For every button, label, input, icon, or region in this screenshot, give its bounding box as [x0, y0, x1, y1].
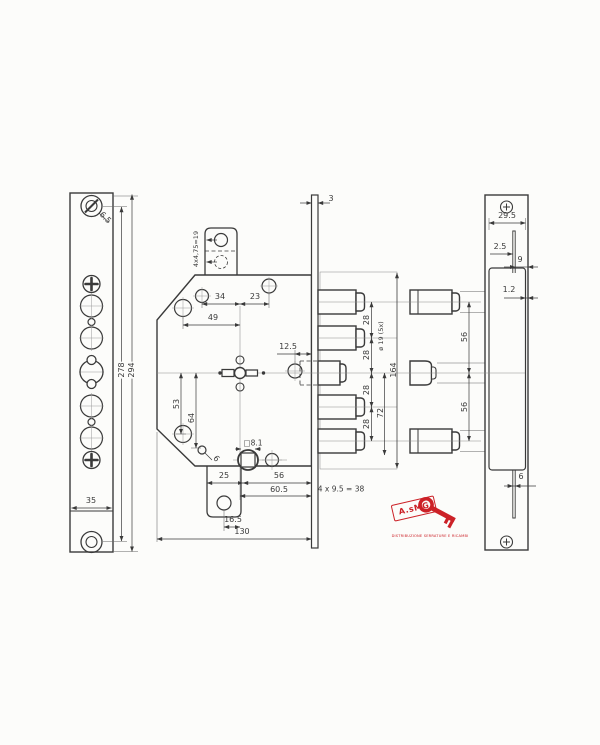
dim-12-5: 12.5 — [279, 343, 297, 351]
dim-plate-width: 35 — [86, 497, 96, 505]
dim-tab-pitch: 4x4,75=19 — [193, 231, 200, 267]
dim-2-5: 2.5 — [494, 243, 507, 251]
dim-screw-formula: 4 x 9.5 = 38 — [318, 485, 365, 493]
dim-164: 164 — [390, 362, 398, 377]
projection-lines — [437, 292, 485, 452]
dim-53: 53 — [173, 399, 181, 409]
dim-bolt-pitch-3: 28 — [363, 385, 371, 395]
bolts-rear-view — [300, 290, 365, 453]
dim-bolt-pitch-2: 28 — [363, 350, 371, 360]
dim-6-bottom: 6 — [518, 473, 523, 481]
dim-spindle-square: □8.1 — [243, 439, 262, 447]
dim-49: 49 — [208, 314, 218, 322]
dim-bolt-pitch-1: 28 — [363, 315, 371, 325]
dim-34: 34 — [215, 293, 225, 301]
faceplate-edge-view — [312, 195, 319, 548]
dim-25: 25 — [219, 472, 229, 480]
brand-caption: DISTRIBUZIONE SERRATURE E RICAMBI — [390, 534, 470, 538]
dim-strike-width: 29.5 — [498, 212, 516, 220]
dim-bolt-diameter: ø 19 (5x) — [378, 321, 385, 350]
dim-56: 56 — [274, 472, 284, 480]
dim-faceplate-thickness: 3 — [328, 195, 333, 203]
dim-16-5: 16.5 — [224, 516, 242, 524]
dim-side-pitch-1: 56 — [461, 332, 469, 342]
dim-23: 23 — [250, 293, 260, 301]
key-icon — [417, 491, 469, 533]
drawing-linework — [0, 0, 600, 745]
dim-9: 9 — [517, 256, 522, 264]
dim-130: 130 — [234, 528, 249, 536]
dim-side-pitch-2: 56 — [461, 402, 469, 412]
strike-plate-side-view — [485, 195, 528, 550]
lock-technical-drawing: 6.5 278 294 35 4x4,75=19 3 34 23 49 12.5… — [0, 0, 600, 745]
dim-60-5: 60.5 — [270, 486, 288, 494]
dim-bolt-pitch-4: 28 — [363, 419, 371, 429]
spindle-square-hole — [238, 450, 258, 470]
brand-stamp: A.sMG DISTRIBUZIONE SERRATURE E RICAMBI — [390, 492, 472, 544]
dim-sheet-thickness: 1.2 — [503, 286, 516, 294]
dim-height-overall: 294 — [128, 361, 136, 378]
bolts-side-view — [410, 290, 460, 453]
dim-height-inner: 278 — [118, 361, 126, 378]
dim-72: 72 — [377, 408, 385, 418]
dim-64: 64 — [188, 413, 196, 423]
key-profile — [218, 356, 265, 391]
